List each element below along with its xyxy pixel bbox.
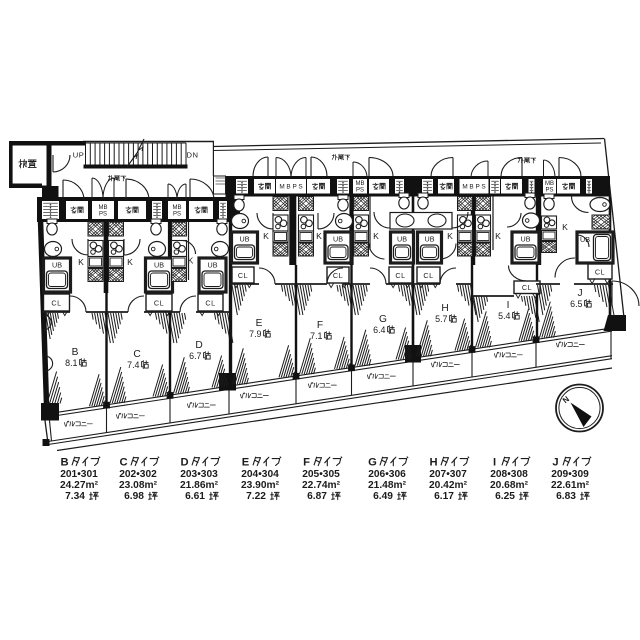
svg-text:UB: UB: [397, 235, 407, 244]
svg-text:6.7: 6.7: [189, 351, 201, 361]
svg-text:E: E: [256, 318, 263, 329]
svg-text:6.5: 6.5: [570, 299, 582, 309]
svg-text:6.98: 6.98: [124, 491, 144, 502]
svg-text:8.1: 8.1: [65, 358, 77, 368]
svg-text:CL: CL: [522, 283, 532, 292]
svg-text:K: K: [127, 257, 133, 267]
svg-text:M B P S: M B P S: [279, 184, 302, 191]
svg-text:CL: CL: [595, 267, 605, 276]
svg-text:K: K: [373, 231, 379, 241]
svg-text:K: K: [447, 231, 453, 241]
svg-text:G: G: [379, 314, 387, 325]
svg-text:C: C: [133, 349, 140, 360]
svg-text:6.83: 6.83: [556, 491, 576, 502]
svg-text:K: K: [562, 222, 568, 232]
svg-text:6.49: 6.49: [373, 491, 393, 502]
svg-text:UB: UB: [240, 235, 250, 244]
svg-text:B: B: [60, 457, 68, 469]
svg-text:23.90m²: 23.90m²: [241, 480, 280, 491]
svg-text:6.87: 6.87: [307, 491, 327, 502]
svg-text:J: J: [552, 457, 558, 469]
svg-text:PS: PS: [356, 188, 364, 194]
svg-text:MB: MB: [545, 181, 554, 187]
svg-text:B: B: [72, 347, 79, 358]
svg-text:E: E: [242, 457, 250, 469]
svg-text:CL: CL: [205, 298, 215, 307]
svg-text:C: C: [119, 457, 127, 469]
svg-text:I: I: [493, 457, 496, 469]
svg-text:21.86m²: 21.86m²: [180, 480, 219, 491]
svg-text:F: F: [303, 457, 310, 469]
svg-text:7.1: 7.1: [310, 331, 322, 341]
svg-text:7.4: 7.4: [127, 360, 139, 370]
svg-text:209•309: 209•309: [551, 469, 589, 480]
svg-text:UP: UP: [73, 151, 85, 160]
svg-text:DN: DN: [187, 151, 199, 160]
svg-text:CL: CL: [333, 271, 343, 280]
svg-text:CL: CL: [51, 298, 61, 307]
svg-text:23.08m²: 23.08m²: [119, 480, 158, 491]
svg-text:20.42m²: 20.42m²: [429, 480, 468, 491]
svg-text:207•307: 207•307: [429, 469, 467, 480]
svg-text:D: D: [195, 340, 202, 351]
svg-text:22.74m²: 22.74m²: [302, 480, 341, 491]
svg-text:K: K: [495, 231, 501, 241]
svg-text:7.22: 7.22: [246, 491, 266, 502]
svg-text:5.7: 5.7: [435, 314, 447, 324]
svg-text:6.25: 6.25: [495, 491, 515, 502]
svg-text:H: H: [441, 303, 448, 314]
svg-text:UB: UB: [425, 235, 435, 244]
svg-text:UB: UB: [208, 261, 218, 270]
svg-text:206•306: 206•306: [368, 469, 406, 480]
svg-text:CL: CL: [423, 271, 433, 280]
svg-text:201•301: 201•301: [60, 469, 98, 480]
svg-text:K: K: [78, 257, 84, 267]
svg-text:24.27m²: 24.27m²: [60, 480, 99, 491]
svg-text:203•303: 203•303: [180, 469, 218, 480]
svg-text:MB: MB: [173, 205, 182, 211]
svg-text:20.68m²: 20.68m²: [490, 480, 529, 491]
svg-text:CL: CL: [395, 271, 405, 280]
svg-text:5.4: 5.4: [498, 311, 510, 321]
svg-text:204•304: 204•304: [241, 469, 279, 480]
svg-text:F: F: [317, 320, 323, 331]
svg-text:208•308: 208•308: [490, 469, 528, 480]
svg-text:UB: UB: [52, 261, 62, 270]
svg-text:MB: MB: [99, 205, 108, 211]
svg-text:M B P S: M B P S: [462, 184, 485, 191]
svg-text:CL: CL: [154, 298, 164, 307]
svg-text:6.17: 6.17: [434, 491, 454, 502]
svg-text:PS: PS: [99, 211, 107, 217]
svg-text:6.4: 6.4: [373, 325, 385, 335]
svg-text:UB: UB: [333, 235, 343, 244]
svg-text:K: K: [188, 256, 194, 266]
svg-text:PS: PS: [545, 188, 553, 194]
svg-text:PS: PS: [173, 211, 181, 217]
svg-text:205•305: 205•305: [302, 469, 340, 480]
svg-text:I: I: [507, 300, 510, 311]
svg-text:21.48m²: 21.48m²: [368, 480, 407, 491]
svg-text:UB: UB: [154, 261, 164, 270]
svg-text:MB: MB: [356, 181, 365, 187]
svg-text:G: G: [368, 457, 377, 469]
svg-text:6.61: 6.61: [185, 491, 205, 502]
svg-text:CL: CL: [238, 271, 248, 280]
svg-text:22.61m²: 22.61m²: [551, 480, 590, 491]
svg-text:UB: UB: [521, 235, 531, 244]
svg-text:D: D: [180, 457, 188, 469]
svg-text:7.9: 7.9: [249, 329, 261, 339]
svg-text:202•302: 202•302: [119, 469, 157, 480]
svg-text:K: K: [316, 231, 322, 241]
svg-text:7.34: 7.34: [65, 491, 85, 502]
svg-text:H: H: [429, 457, 437, 469]
svg-text:J: J: [577, 288, 582, 299]
svg-text:K: K: [263, 231, 269, 241]
